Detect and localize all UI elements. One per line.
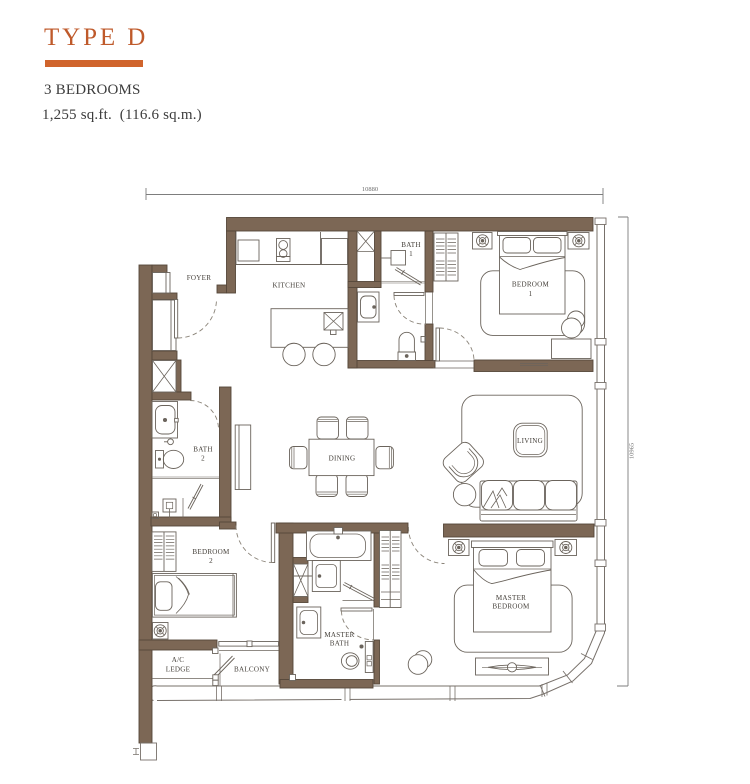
svg-text:10880: 10880 bbox=[362, 186, 378, 193]
svg-text:BEDROOM: BEDROOM bbox=[192, 548, 230, 556]
svg-text:BALCONY: BALCONY bbox=[234, 666, 270, 674]
svg-text:1: 1 bbox=[409, 250, 413, 258]
svg-text:LEDGE: LEDGE bbox=[166, 666, 191, 674]
svg-text:BEDROOM: BEDROOM bbox=[512, 281, 550, 289]
svg-text:2: 2 bbox=[209, 557, 213, 565]
svg-text:1: 1 bbox=[529, 290, 533, 298]
svg-text:10965: 10965 bbox=[629, 443, 636, 459]
svg-text:BATH: BATH bbox=[193, 446, 213, 454]
svg-text:LIVING: LIVING bbox=[517, 437, 543, 445]
svg-text:KITCHEN: KITCHEN bbox=[273, 282, 306, 290]
svg-text:FOYER: FOYER bbox=[187, 274, 212, 282]
svg-text:BATH: BATH bbox=[401, 241, 421, 249]
svg-text:2: 2 bbox=[201, 455, 205, 463]
svg-text:DINING: DINING bbox=[329, 455, 356, 463]
svg-text:MASTER: MASTER bbox=[324, 631, 354, 639]
svg-text:BATH: BATH bbox=[330, 640, 350, 648]
svg-text:A/C: A/C bbox=[172, 656, 185, 664]
svg-text:BEDROOM: BEDROOM bbox=[492, 603, 530, 611]
svg-text:MASTER: MASTER bbox=[496, 594, 526, 602]
